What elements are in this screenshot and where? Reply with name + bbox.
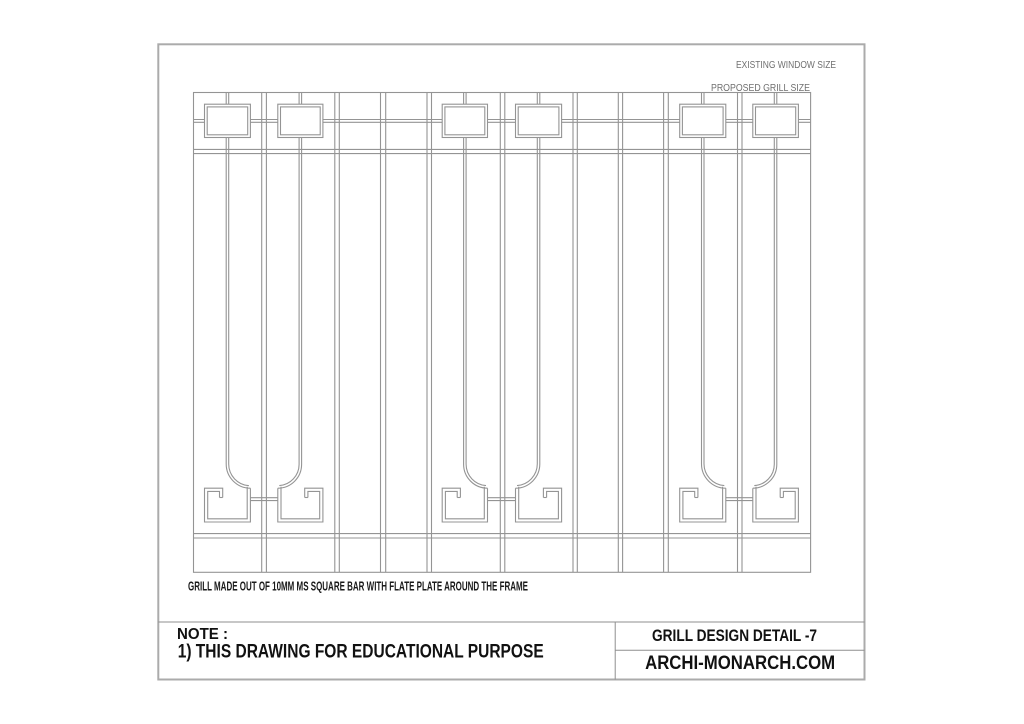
- svg-text:EXISTING WINDOW SIZE: EXISTING WINDOW SIZE: [736, 59, 836, 71]
- svg-text:PROPOSED GRILL SIZE: PROPOSED GRILL SIZE: [711, 82, 810, 94]
- svg-text:GRILL DESIGN DETAIL -7: GRILL DESIGN DETAIL -7: [652, 627, 817, 645]
- svg-text:ARCHI-MONARCH.COM: ARCHI-MONARCH.COM: [645, 653, 835, 674]
- svg-text:GRILL MADE OUT OF 10MM MS SQUA: GRILL MADE OUT OF 10MM MS SQUARE BAR WIT…: [188, 579, 528, 594]
- svg-text:1) THIS DRAWING FOR EDUCATIONA: 1) THIS DRAWING FOR EDUCATIONAL PURPOSE: [178, 640, 544, 662]
